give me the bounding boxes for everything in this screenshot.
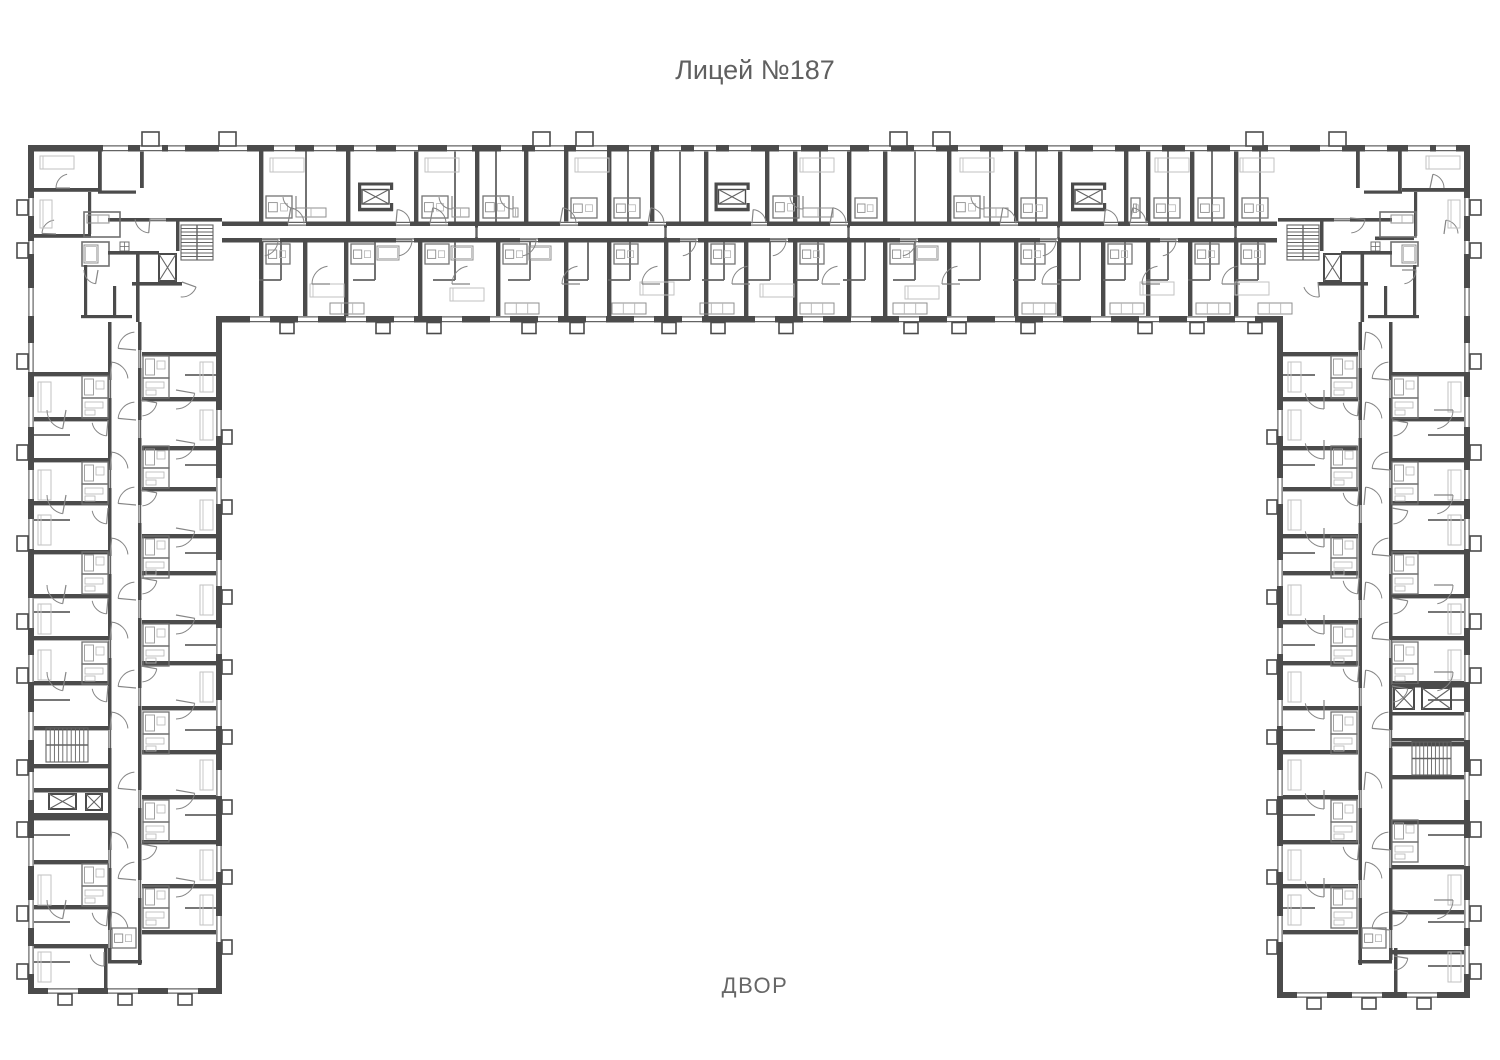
svg-text:Лицей №187: Лицей №187 [675,55,835,85]
svg-text:ДВОР: ДВОР [722,973,789,998]
